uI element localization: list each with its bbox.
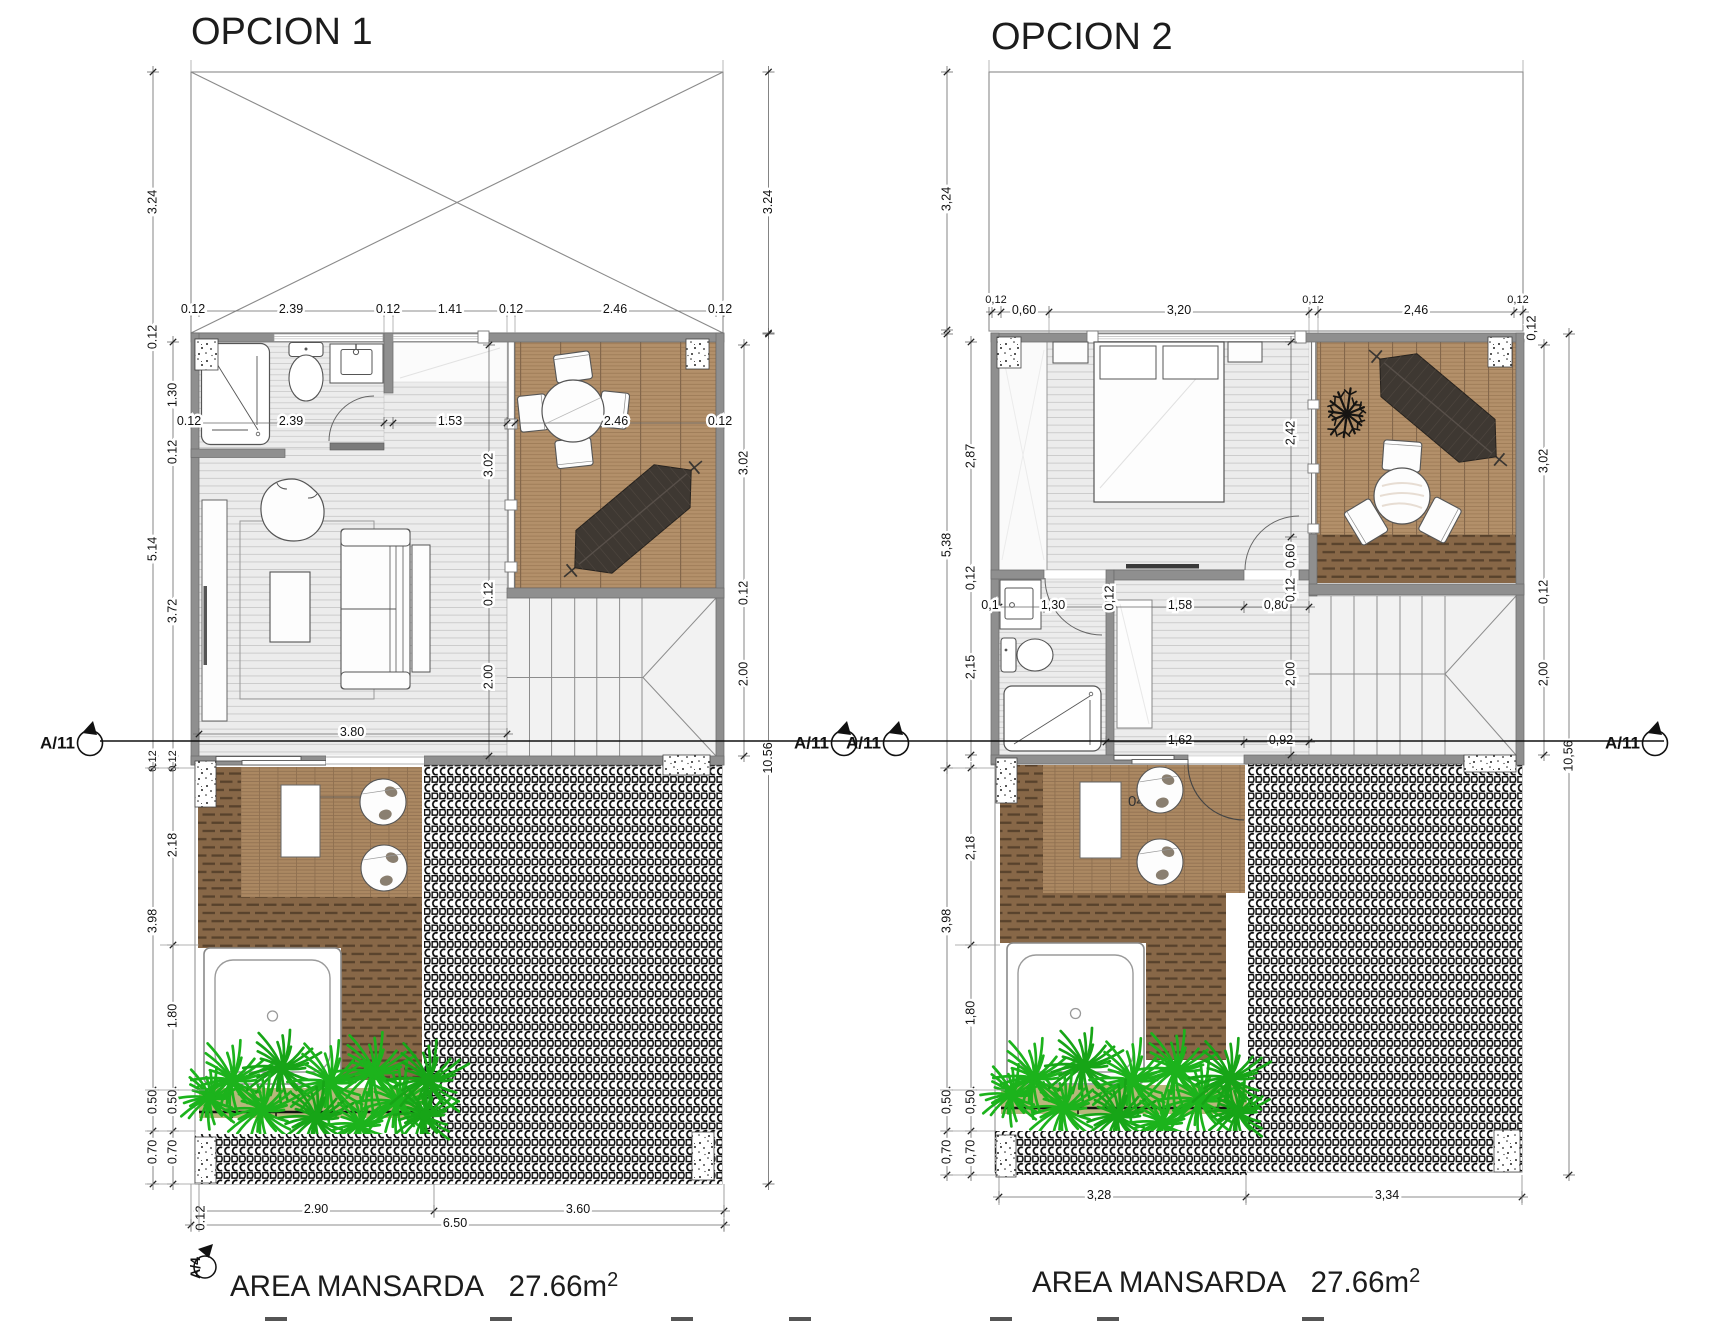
svg-text:3.72: 3.72: [165, 599, 179, 623]
svg-text:3.02: 3.02: [736, 451, 750, 475]
svg-text:2,46: 2,46: [1404, 303, 1428, 317]
svg-text:2.46: 2.46: [604, 414, 628, 428]
svg-text:1,58: 1,58: [1168, 598, 1192, 612]
svg-text:0.12: 0.12: [181, 302, 205, 316]
svg-text:3,24: 3,24: [939, 187, 953, 211]
svg-text:0.12: 0.12: [499, 302, 523, 316]
svg-text:A/11: A/11: [846, 733, 881, 752]
svg-text:0,50: 0,50: [963, 1090, 977, 1114]
svg-text:0.12: 0.12: [708, 414, 732, 428]
svg-text:0.12: 0.12: [145, 325, 159, 349]
svg-text:5,38: 5,38: [939, 533, 953, 557]
svg-text:3,98: 3,98: [939, 909, 953, 933]
svg-text:0.50: 0.50: [145, 1090, 159, 1114]
svg-text:10,56: 10,56: [1561, 740, 1575, 771]
svg-text:3,34: 3,34: [1375, 1188, 1399, 1202]
svg-text:3.80: 3.80: [340, 725, 364, 739]
svg-text:2,87: 2,87: [963, 444, 977, 468]
svg-text:A/11: A/11: [40, 733, 75, 752]
svg-text:AREA MANSARDA 27.66m2: AREA MANSARDA 27.66m2: [230, 1269, 618, 1303]
svg-text:0,12: 0,12: [963, 566, 977, 590]
svg-text:0,12: 0,12: [1101, 585, 1116, 610]
svg-text:1.80: 1.80: [165, 1004, 179, 1028]
svg-text:1.53: 1.53: [438, 414, 462, 428]
svg-text:0.70: 0.70: [165, 1140, 179, 1164]
svg-text:2,00: 2,00: [1283, 662, 1297, 686]
svg-text:0.12: 0.12: [192, 1205, 207, 1230]
svg-text:2.90: 2.90: [304, 1202, 328, 1216]
svg-text:0,12: 0,12: [1507, 294, 1528, 306]
svg-text:10.56: 10.56: [761, 742, 775, 773]
svg-text:6.50: 6.50: [443, 1216, 467, 1230]
svg-text:3.24: 3.24: [145, 190, 159, 214]
svg-text:0,70: 0,70: [939, 1140, 953, 1164]
svg-text:0.12: 0.12: [708, 302, 732, 316]
svg-text:0.12: 0.12: [177, 414, 201, 428]
svg-text:1,62: 1,62: [1168, 733, 1192, 747]
svg-text:2.00: 2.00: [481, 665, 495, 689]
svg-text:0,12: 0,12: [1283, 578, 1297, 602]
svg-text:3.02: 3.02: [481, 453, 495, 477]
svg-text:2.18: 2.18: [165, 833, 179, 857]
svg-text:3,20: 3,20: [1167, 303, 1191, 317]
svg-text:1,30: 1,30: [1041, 598, 1065, 612]
svg-text:5.14: 5.14: [145, 537, 159, 561]
svg-text:0,12: 0,12: [1523, 315, 1538, 340]
svg-text:A/11: A/11: [1605, 733, 1640, 752]
svg-text:0,60: 0,60: [1012, 303, 1036, 317]
svg-text:2,15: 2,15: [963, 655, 977, 679]
svg-text:2.39: 2.39: [279, 302, 303, 316]
svg-text:A/11: A/11: [794, 733, 829, 752]
svg-text:2.00: 2.00: [736, 662, 750, 686]
svg-text:0.70: 0.70: [145, 1140, 159, 1164]
svg-text:0,1: 0,1: [981, 598, 998, 612]
svg-text:3.24: 3.24: [761, 190, 775, 214]
svg-text:1.41: 1.41: [438, 302, 462, 316]
svg-text:0,92: 0,92: [1269, 733, 1293, 747]
svg-text:0,70: 0,70: [963, 1140, 977, 1164]
svg-text:0.12: 0.12: [376, 302, 400, 316]
svg-text:0.50: 0.50: [165, 1090, 179, 1114]
svg-text:0.12: 0.12: [736, 581, 750, 605]
svg-text:0,12: 0,12: [1302, 294, 1323, 306]
svg-text:3.60: 3.60: [566, 1202, 590, 1216]
svg-text:3.98: 3.98: [145, 909, 159, 933]
svg-text:2.39: 2.39: [279, 414, 303, 428]
svg-text:2,18: 2,18: [963, 836, 977, 860]
svg-text:OPCION 1: OPCION 1: [191, 11, 373, 53]
svg-text:0,50: 0,50: [939, 1090, 953, 1114]
svg-text:1.30: 1.30: [165, 383, 179, 407]
svg-text:1,80: 1,80: [963, 1001, 977, 1025]
svg-text:2,42: 2,42: [1283, 421, 1297, 445]
svg-text:3,02: 3,02: [1536, 449, 1550, 473]
svg-text:0,12: 0,12: [1536, 580, 1550, 604]
svg-text:OPCION 2: OPCION 2: [991, 16, 1173, 58]
svg-text:0,60: 0,60: [1283, 544, 1297, 568]
svg-text:2,00: 2,00: [1536, 662, 1550, 686]
svg-text:AREA MANSARDA 27.66m2: AREA MANSARDA 27.66m2: [1032, 1265, 1420, 1299]
svg-text:3,28: 3,28: [1087, 1188, 1111, 1202]
svg-text:0,12: 0,12: [985, 294, 1006, 306]
svg-text:A/4: A/4: [187, 1257, 203, 1279]
svg-text:2.46: 2.46: [603, 302, 627, 316]
svg-text:0.12: 0.12: [481, 582, 495, 606]
svg-text:0.12: 0.12: [165, 440, 179, 464]
